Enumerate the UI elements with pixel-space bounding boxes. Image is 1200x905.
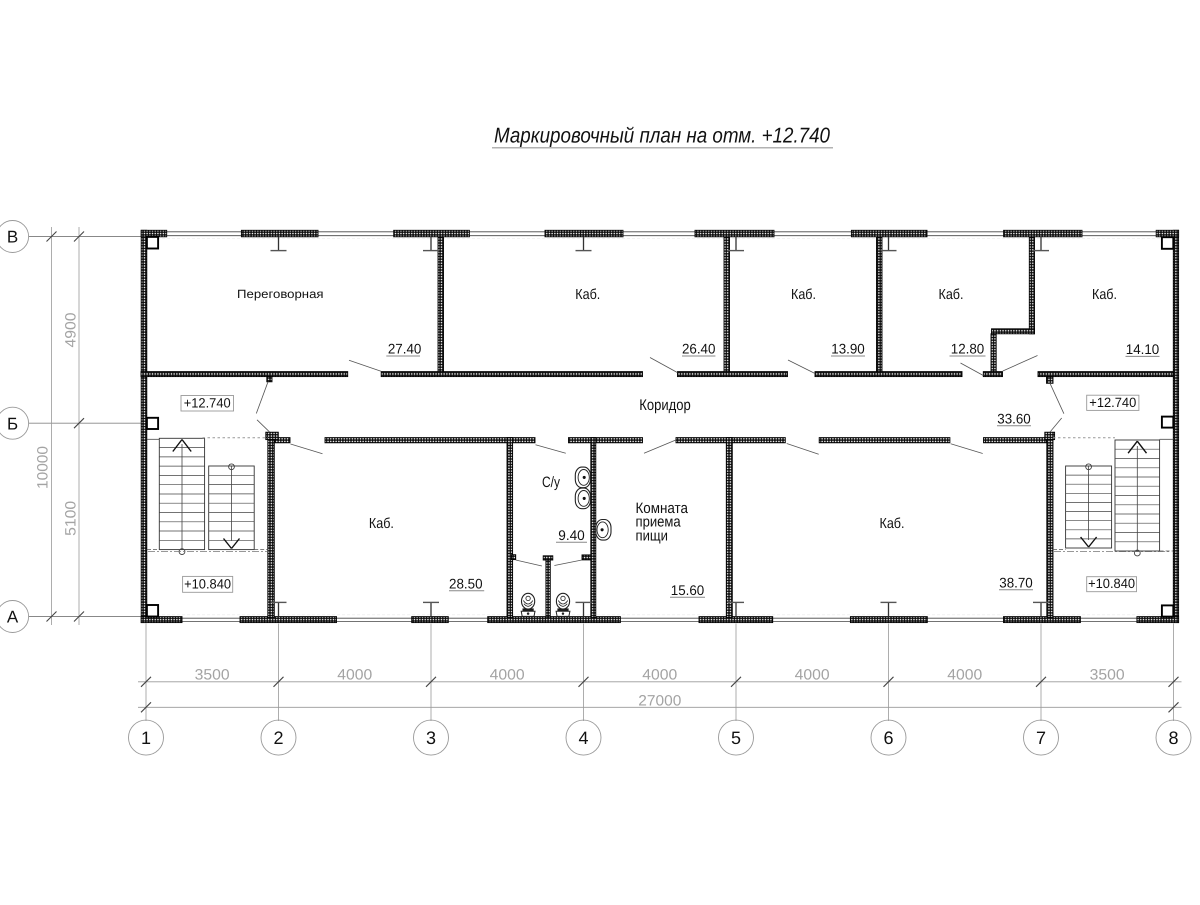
svg-text:+10.840: +10.840 [1088,576,1135,591]
svg-text:4000: 4000 [947,667,982,684]
svg-text:4000: 4000 [490,667,525,684]
svg-text:2: 2 [273,728,283,748]
svg-text:Маркировочный план на отм. +12: Маркировочный план на отм. +12.740 [494,124,830,148]
svg-text:7: 7 [1036,728,1046,748]
svg-text:33.60: 33.60 [997,410,1031,426]
svg-text:Каб.: Каб. [880,516,905,532]
svg-text:Каб.: Каб. [791,287,816,303]
svg-text:Каб.: Каб. [369,516,394,532]
svg-text:4000: 4000 [642,667,677,684]
svg-text:10000: 10000 [35,446,52,489]
svg-text:28.50: 28.50 [449,575,483,591]
svg-text:4000: 4000 [795,667,830,684]
svg-text:4900: 4900 [63,313,80,348]
svg-text:Б: Б [7,414,18,433]
svg-text:+10.840: +10.840 [184,577,231,592]
svg-text:27.40: 27.40 [388,341,422,357]
svg-text:9.40: 9.40 [558,527,585,543]
svg-text:В: В [7,228,18,247]
svg-text:6: 6 [883,728,893,748]
svg-text:Каб.: Каб. [1092,287,1117,303]
svg-text:12.80: 12.80 [951,341,985,357]
svg-text:4: 4 [578,728,588,748]
svg-text:+12.740: +12.740 [1089,395,1136,410]
svg-text:Переговорная: Переговорная [237,287,324,301]
svg-text:Каб.: Каб. [939,287,964,303]
svg-text:3: 3 [426,728,436,748]
svg-text:3500: 3500 [195,667,230,684]
svg-text:4000: 4000 [337,667,372,684]
svg-text:5: 5 [731,728,741,748]
svg-text:38.70: 38.70 [999,574,1033,590]
svg-text:14.10: 14.10 [1126,341,1160,357]
svg-text:15.60: 15.60 [671,582,705,598]
svg-text:26.40: 26.40 [682,341,716,357]
svg-text:3500: 3500 [1090,667,1125,684]
svg-text:С/у: С/у [542,474,560,491]
svg-text:5100: 5100 [63,501,80,536]
svg-text:8: 8 [1168,728,1178,748]
svg-text:Коридор: Коридор [639,397,691,414]
svg-text:1: 1 [141,728,151,748]
svg-text:+12.740: +12.740 [184,395,231,410]
svg-text:Каб.: Каб. [575,287,600,303]
svg-text:27000: 27000 [638,692,681,709]
svg-text:пищи: пищи [636,527,669,544]
svg-text:13.90: 13.90 [831,341,865,357]
svg-text:А: А [7,608,19,627]
